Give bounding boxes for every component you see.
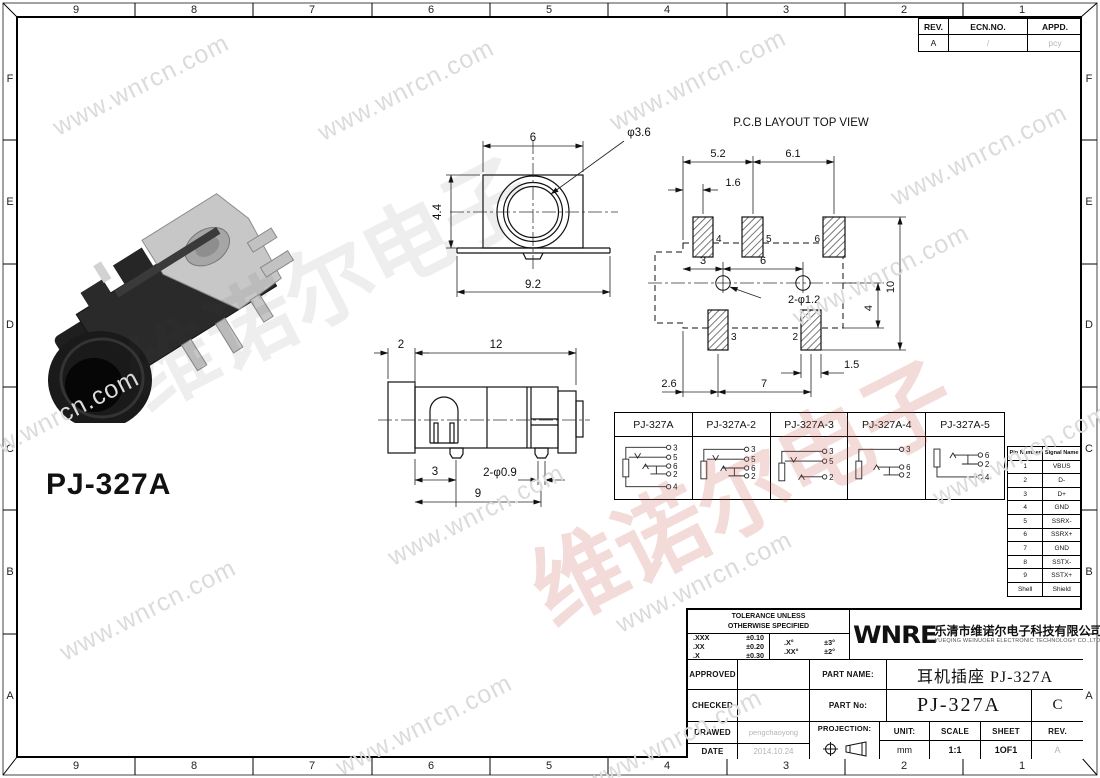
- table-row: 7GND: [1008, 542, 1081, 556]
- grid-label-bottom: 1: [1019, 760, 1025, 772]
- revision-value-ecn: /: [949, 35, 1028, 51]
- dim-width-top: 6: [530, 132, 536, 144]
- product-photo: [28, 138, 313, 423]
- revision-value-rev: A: [919, 35, 949, 51]
- svg-text:3: 3: [829, 447, 834, 456]
- solder-leg: [450, 448, 463, 458]
- variant-header: PJ-327A-3: [771, 413, 849, 437]
- table-row: ShellShield: [1008, 582, 1081, 596]
- dim-pad-width: 1.5: [844, 359, 859, 371]
- part-name-label: PART NAME:: [810, 660, 887, 690]
- grid-label-bottom: 8: [191, 760, 197, 772]
- dim-width-bottom: 9.2: [525, 279, 541, 291]
- svg-text:5: 5: [829, 457, 834, 466]
- svg-text:4: 4: [673, 483, 678, 492]
- dim-pin-offset: 3: [432, 466, 438, 478]
- grid-label-bottom: 2: [901, 760, 907, 772]
- grid-label-bottom: 5: [546, 760, 552, 772]
- grid-label-left: E: [6, 196, 13, 208]
- grid-label-right: D: [1085, 319, 1093, 331]
- grid-label-top: 7: [309, 4, 315, 16]
- dim-length: 12: [490, 339, 503, 351]
- drawed-value: pengchaoyong: [738, 722, 810, 744]
- svg-text:2: 2: [985, 460, 990, 469]
- pad-5: [742, 217, 763, 257]
- pad-label-4: 4: [716, 234, 722, 245]
- pad-label-2: 2: [792, 332, 798, 343]
- projection-symbol-icon: [822, 741, 868, 757]
- photo-leg: [182, 339, 207, 370]
- photo-leg: [216, 318, 243, 353]
- grid-label-top: 5: [546, 4, 552, 16]
- grid-label-right: C: [1085, 443, 1093, 455]
- checked-label: CHECKED: [688, 690, 738, 722]
- dim-bottom-pitch: 7: [761, 378, 767, 390]
- pad-3: [708, 310, 728, 350]
- tolerance-header: TOLERANCE UNLESS OTHERWISE SPECIFIED: [688, 610, 850, 634]
- pad-4: [693, 217, 713, 257]
- company-logo: WNRE: [853, 621, 937, 649]
- grid-label-left: D: [6, 319, 14, 331]
- company-name-cn: 乐清市维诺尔电子科技有限公司: [934, 625, 1100, 639]
- rev-value: A: [1032, 741, 1083, 759]
- table-row: 2D-: [1008, 474, 1081, 488]
- table-row: 3D+: [1008, 487, 1081, 501]
- revision-header-ecn: ECN.NO.: [949, 19, 1028, 35]
- svg-text:3: 3: [673, 443, 678, 452]
- grid-label-right: E: [1085, 196, 1092, 208]
- grid-label-bottom: 3: [783, 760, 789, 772]
- dim-height: 4.4: [432, 203, 444, 220]
- approved-label: APPROVED: [688, 660, 738, 690]
- grid-label-top: 3: [783, 4, 789, 16]
- svg-text:3: 3: [751, 445, 756, 454]
- variant-header: PJ-327A-5: [926, 413, 1004, 437]
- dim-hole-offset: 3: [700, 255, 706, 267]
- part-name-value: 耳机插座 PJ-327A: [887, 660, 1083, 690]
- variant-schematic: 3562: [693, 437, 771, 499]
- svg-text:5: 5: [751, 455, 756, 464]
- dim-holes: 2-φ1.2: [788, 294, 820, 306]
- dim-pitch-right: 6.1: [785, 148, 800, 160]
- side-view-drawing: 2 12 3 2-φ0.9 9: [372, 335, 612, 513]
- grid-label-bottom: 7: [309, 760, 315, 772]
- pad-label-3: 3: [731, 332, 737, 343]
- grid-label-left: F: [7, 73, 14, 85]
- photo-leg: [250, 294, 273, 322]
- pcb-layout-drawing: P.C.B LAYOUT TOP VIEW: [648, 112, 918, 404]
- company-name-en: YUEQING WEINUOER ELECTRONIC TECHNOLOGY C…: [934, 638, 1100, 644]
- scale-label: SCALE: [930, 722, 981, 741]
- projection-label: PROJECTION:: [818, 724, 871, 733]
- table-row: 6SSRX+: [1008, 528, 1081, 542]
- rev-label: REV.: [1032, 722, 1083, 741]
- projection-cell: PROJECTION:: [810, 722, 880, 759]
- part-number-label: PJ-327A: [46, 468, 171, 502]
- svg-text:2: 2: [906, 471, 910, 480]
- grid-label-left: B: [6, 566, 13, 578]
- tolerance-linear: .XXX±0.10 .XX±0.20 .X±0.30: [688, 634, 770, 660]
- grid-label-bottom: 4: [664, 760, 670, 772]
- svg-text:5: 5: [673, 453, 678, 462]
- dim-hole-pitch: 6: [760, 255, 766, 267]
- part-no-rev: C: [1032, 690, 1083, 722]
- dim-height-total: 10: [885, 281, 897, 293]
- dim-pin-span: 9: [475, 488, 481, 500]
- pad-label-6: 6: [814, 234, 820, 245]
- part-no-label: PART No:: [810, 690, 887, 722]
- unit-value: mm: [880, 741, 930, 759]
- title-block: TOLERANCE UNLESS OTHERWISE SPECIFIED .XX…: [686, 608, 1081, 757]
- svg-text:2: 2: [829, 473, 833, 482]
- svg-text:3: 3: [906, 445, 911, 454]
- table-row: 5SSRX-: [1008, 514, 1081, 528]
- table-row: 4GND: [1008, 501, 1081, 515]
- grid-label-left: C: [6, 443, 14, 455]
- variants-table: PJ-327A PJ-327A-2 PJ-327A-3 PJ-327A-4 PJ…: [614, 412, 1005, 500]
- date-label: DATE: [688, 744, 738, 759]
- pad-2: [801, 310, 821, 350]
- front-view-drawing: 6 φ3.6 4.4 9.2: [408, 112, 668, 317]
- grid-label-bottom: 6: [428, 760, 434, 772]
- svg-text:2: 2: [751, 472, 755, 481]
- dim-pin-holes: 2-φ0.9: [483, 467, 517, 479]
- grid-label-top: 8: [191, 4, 197, 16]
- company-block: WNRE 乐清市维诺尔电子科技有限公司 YUEQING WEINUOER ELE…: [850, 610, 1083, 660]
- pin-signal-table: Pin NumberSignal Name 1VBUS 2D- 3D+ 4GND…: [1007, 446, 1081, 597]
- sheet-label: SHEET: [981, 722, 1032, 741]
- grid-label-bottom: 9: [73, 760, 79, 772]
- drawing-sheet: 9 8 7 6 5 4 3 2 1 9 8 7 6 5 4 3 2 1 F E …: [0, 0, 1100, 778]
- pad-label-5: 5: [766, 234, 772, 245]
- pad-6: [823, 217, 845, 257]
- dim-height-center: 4: [863, 305, 875, 311]
- pcb-title: P.C.B LAYOUT TOP VIEW: [733, 117, 869, 129]
- svg-text:4: 4: [985, 473, 990, 482]
- sheet-value: 1OF1: [981, 741, 1032, 759]
- grid-label-top: 2: [901, 4, 907, 16]
- variant-schematic: 362: [848, 437, 926, 499]
- grid-label-left: A: [6, 690, 13, 702]
- tolerance-angular: .X°±3° .XX°±2°: [770, 634, 850, 660]
- dim-bottom-offset: 2.6: [661, 378, 676, 390]
- variant-header: PJ-327A: [615, 413, 693, 437]
- variant-schematic: 352: [771, 437, 849, 499]
- drawed-label: DRAWED: [688, 722, 738, 744]
- revision-value-appd: pcy: [1028, 35, 1082, 51]
- part-no-value: PJ-327A: [887, 690, 1032, 722]
- revision-table: REV. ECN.NO. APPD. A / pcy: [918, 18, 1081, 52]
- table-row: 1VBUS: [1008, 460, 1081, 474]
- variant-header: PJ-327A-2: [693, 413, 771, 437]
- scale-value: 1:1: [930, 741, 981, 759]
- unit-label: UNIT:: [880, 722, 930, 741]
- grid-label-right: F: [1086, 73, 1093, 85]
- dim-offset: 1.6: [725, 177, 740, 189]
- grid-label-top: 4: [664, 4, 670, 16]
- revision-header-appd: APPD.: [1028, 19, 1082, 35]
- grid-label-top: 9: [73, 4, 79, 16]
- variant-schematic: 624: [926, 437, 1004, 499]
- table-row: 8SSTX-: [1008, 555, 1081, 569]
- checked-value: [738, 690, 810, 722]
- dim-pitch-left: 5.2: [710, 148, 725, 160]
- solder-leg: [535, 448, 548, 458]
- revision-header-rev: REV.: [919, 19, 949, 35]
- svg-text:6: 6: [985, 451, 990, 460]
- svg-text:2: 2: [673, 470, 677, 479]
- variant-header: PJ-327A-4: [848, 413, 926, 437]
- dim-cap: 2: [398, 339, 404, 351]
- grid-label-top: 6: [428, 4, 434, 16]
- grid-label-right: B: [1085, 566, 1092, 578]
- table-row: 9SSTX+: [1008, 569, 1081, 583]
- date-value: 2014.10.24: [738, 744, 810, 759]
- grid-label-right: A: [1085, 690, 1092, 702]
- grid-label-top: 1: [1019, 4, 1025, 16]
- variant-schematic: 35624: [615, 437, 693, 499]
- approved-value: [738, 660, 810, 690]
